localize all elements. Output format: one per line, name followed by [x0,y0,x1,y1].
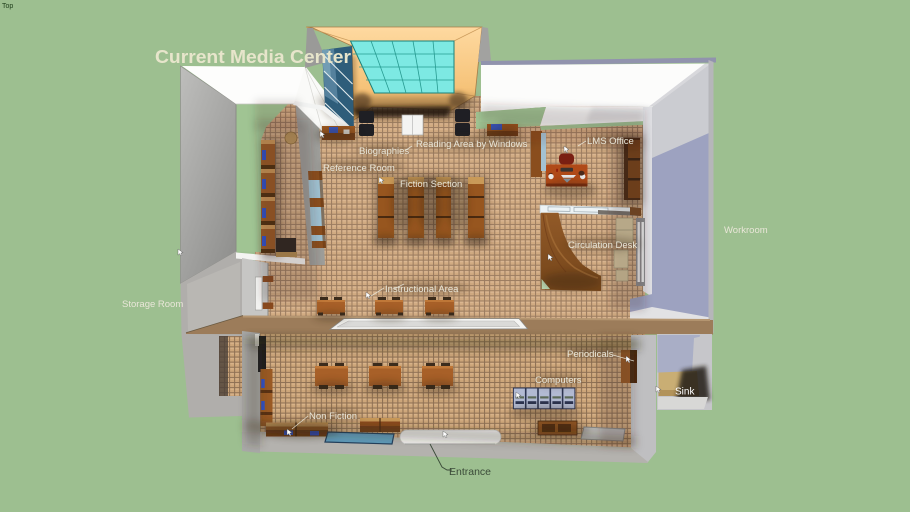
svg-text:Instructional Area: Instructional Area [385,284,459,295]
svg-text:Fiction Section: Fiction Section [400,179,462,190]
svg-text:Current Media Center: Current Media Center [155,46,351,67]
svg-text:Top: Top [2,3,13,10]
svg-text:Reference Room: Reference Room [323,163,395,174]
svg-text:Non Fiction: Non Fiction [309,411,357,422]
svg-text:Entrance: Entrance [449,466,491,478]
svg-text:Circulation Desk: Circulation Desk [568,240,637,251]
svg-text:Biographies: Biographies [359,146,409,157]
svg-text:Workroom: Workroom [724,225,768,236]
svg-text:Sink: Sink [675,387,695,398]
svg-text:Storage Room: Storage Room [122,299,183,310]
svg-text:Reading Area by Windows: Reading Area by Windows [416,139,528,150]
svg-text:Periodicals: Periodicals [567,349,614,360]
svg-text:Computers: Computers [535,375,582,386]
svg-text:LMS Office: LMS Office [587,136,634,147]
